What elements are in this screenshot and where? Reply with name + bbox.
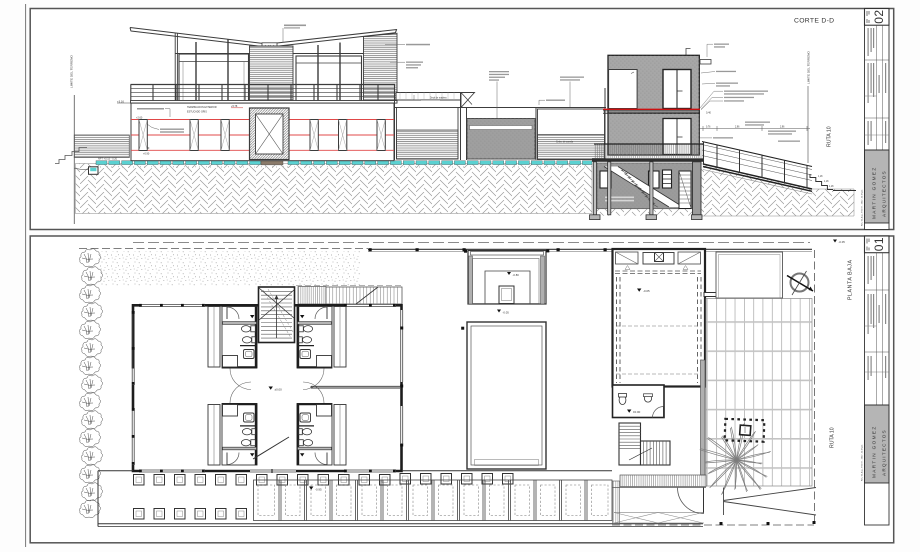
svg-text:1,18: 1,18 [824, 181, 829, 183]
svg-text:RUTA 10: RUTA 10 [830, 427, 836, 448]
svg-text:-0.05: -0.05 [643, 289, 650, 293]
svg-text:2,96: 2,96 [735, 127, 740, 129]
svg-text:01: 01 [872, 237, 886, 251]
svg-text:TERMINACION EXTERIOR: TERMINACION EXTERIOR [187, 106, 217, 109]
svg-text:RUTA 10: RUTA 10 [827, 126, 833, 147]
svg-text:ARQUITECTOS: ARQUITECTOS [882, 429, 887, 476]
svg-text:±0.00: ±0.00 [633, 410, 641, 414]
svg-text:PLANTA BAJA: PLANTA BAJA [848, 259, 854, 300]
svg-text:-0.95: -0.95 [315, 488, 322, 492]
svg-text:-0.05: -0.05 [839, 240, 846, 244]
svg-text:ESTUCADO GRIS: ESTUCADO GRIS [187, 111, 207, 114]
svg-text:+3.16: +3.16 [117, 99, 124, 103]
svg-text:MARTIN GOMEZ: MARTIN GOMEZ [872, 166, 877, 219]
svg-text:2,96: 2,96 [780, 127, 785, 129]
svg-text:MARTIN GOMEZ: MARTIN GOMEZ [872, 425, 877, 478]
svg-text:LIMITE DEL TERRENO: LIMITE DEL TERRENO [807, 51, 811, 84]
svg-text:+2.60: +2.60 [136, 116, 143, 119]
svg-text:-0.80: -0.80 [513, 273, 520, 277]
svg-text:0,76: 0,76 [706, 127, 711, 129]
svg-text:0,40: 0,40 [706, 112, 711, 115]
svg-text:1,18: 1,18 [829, 186, 834, 188]
svg-text:-0.05: -0.05 [503, 310, 510, 314]
svg-text:+0.90: +0.90 [143, 153, 150, 156]
svg-text:NPT +0.15 - 0.20: NPT +0.15 - 0.20 [98, 158, 118, 161]
svg-text:CORTE D-D: CORTE D-D [794, 18, 834, 25]
svg-text:±0.00: ±0.00 [275, 388, 283, 392]
svg-text:ARQUITECTOS: ARQUITECTOS [882, 170, 887, 217]
svg-text:02: 02 [872, 9, 886, 23]
svg-text:LIMITE DEL TERRENO: LIMITE DEL TERRENO [70, 55, 74, 88]
svg-text:1,18: 1,18 [818, 176, 823, 178]
